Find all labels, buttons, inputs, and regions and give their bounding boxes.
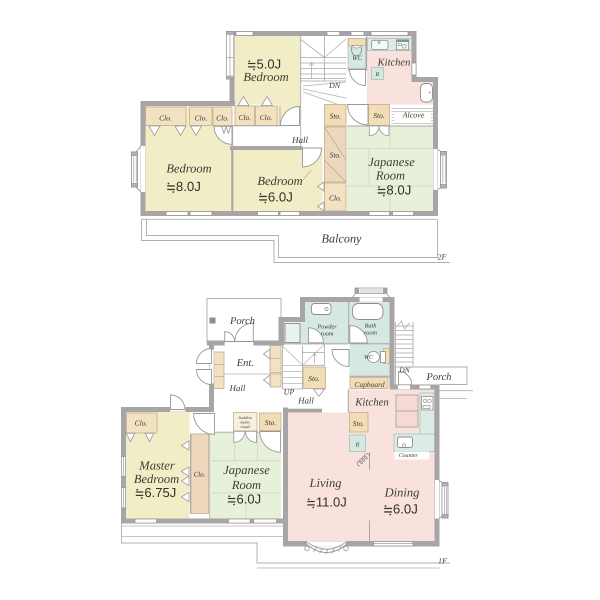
svg-text:11.0J: 11.0J [316, 495, 347, 510]
svg-text:6.0J: 6.0J [268, 190, 293, 205]
svg-text:Clo.: Clo. [329, 194, 342, 203]
svg-text:Clo.: Clo. [194, 471, 206, 479]
svg-text:Bedroom: Bedroom [166, 162, 211, 176]
svg-text:Hall: Hall [291, 135, 309, 145]
svg-text:Clo.: Clo. [260, 113, 273, 122]
svg-text:Clo.: Clo. [159, 114, 172, 123]
svg-text:Japanese: Japanese [223, 463, 270, 477]
svg-text:1F: 1F [438, 557, 447, 566]
svg-text:Japanese: Japanese [368, 155, 415, 169]
svg-text:Hall: Hall [229, 383, 246, 393]
svg-text:room: room [321, 331, 334, 338]
svg-text:Sto.: Sto. [373, 111, 385, 120]
svg-text:Sto.: Sto. [330, 112, 342, 121]
svg-text:Room: Room [375, 169, 405, 183]
svg-text:Cupboard: Cupboard [354, 380, 384, 389]
svg-text:Porch: Porch [425, 372, 451, 383]
svg-text:Master: Master [138, 459, 175, 473]
svg-text:Sto.: Sto. [330, 151, 342, 160]
svg-text:Clo.: Clo. [216, 114, 229, 123]
svg-text:Counter: Counter [399, 453, 419, 459]
svg-text:room: room [364, 330, 377, 337]
svg-text:WC: WC [352, 55, 362, 62]
svg-text:Sto.: Sto. [265, 418, 277, 427]
svg-text:Hall: Hall [297, 396, 314, 406]
svg-text:8.0J: 8.0J [386, 183, 411, 198]
svg-text:8.0J: 8.0J [176, 179, 201, 194]
svg-text:Dining: Dining [384, 486, 420, 500]
svg-text:chapel: chapel [240, 425, 250, 429]
svg-text:Bedroom: Bedroom [243, 70, 288, 84]
svg-text:Bedroom: Bedroom [134, 472, 179, 486]
svg-text:Sto.: Sto. [308, 374, 320, 383]
svg-text:6.0J: 6.0J [237, 492, 262, 507]
svg-text:Alcove: Alcove [402, 111, 425, 120]
svg-text:DN: DN [328, 81, 341, 90]
svg-text:Balcony: Balcony [322, 232, 363, 246]
svg-text:WC: WC [364, 354, 374, 361]
svg-text:Clo.: Clo. [238, 113, 251, 122]
svg-text:6.0J: 6.0J [393, 502, 418, 517]
svg-text:Kitchen: Kitchen [354, 397, 389, 409]
svg-text:R: R [355, 442, 360, 449]
svg-text:UP: UP [284, 388, 295, 397]
svg-text:Buddhist: Buddhist [239, 416, 253, 420]
svg-text:Clo.: Clo. [135, 419, 148, 428]
svg-text:family: family [241, 421, 251, 425]
svg-text:6.75J: 6.75J [144, 485, 176, 500]
svg-text:Bedroom: Bedroom [257, 174, 302, 188]
svg-text:Clo.: Clo. [195, 114, 208, 123]
svg-text:2F: 2F [438, 253, 447, 262]
svg-text:Kitchen: Kitchen [377, 58, 411, 69]
svg-text:DN: DN [398, 366, 410, 375]
svg-text:Bath: Bath [365, 323, 377, 330]
svg-text:R: R [375, 72, 380, 78]
svg-text:Porch: Porch [229, 316, 255, 327]
svg-text:Sto.: Sto. [353, 419, 365, 428]
svg-text:Powder: Powder [316, 324, 337, 331]
svg-text:Living: Living [309, 476, 342, 490]
svg-text:Room: Room [231, 478, 261, 492]
svg-text:Ent.: Ent. [236, 358, 254, 369]
